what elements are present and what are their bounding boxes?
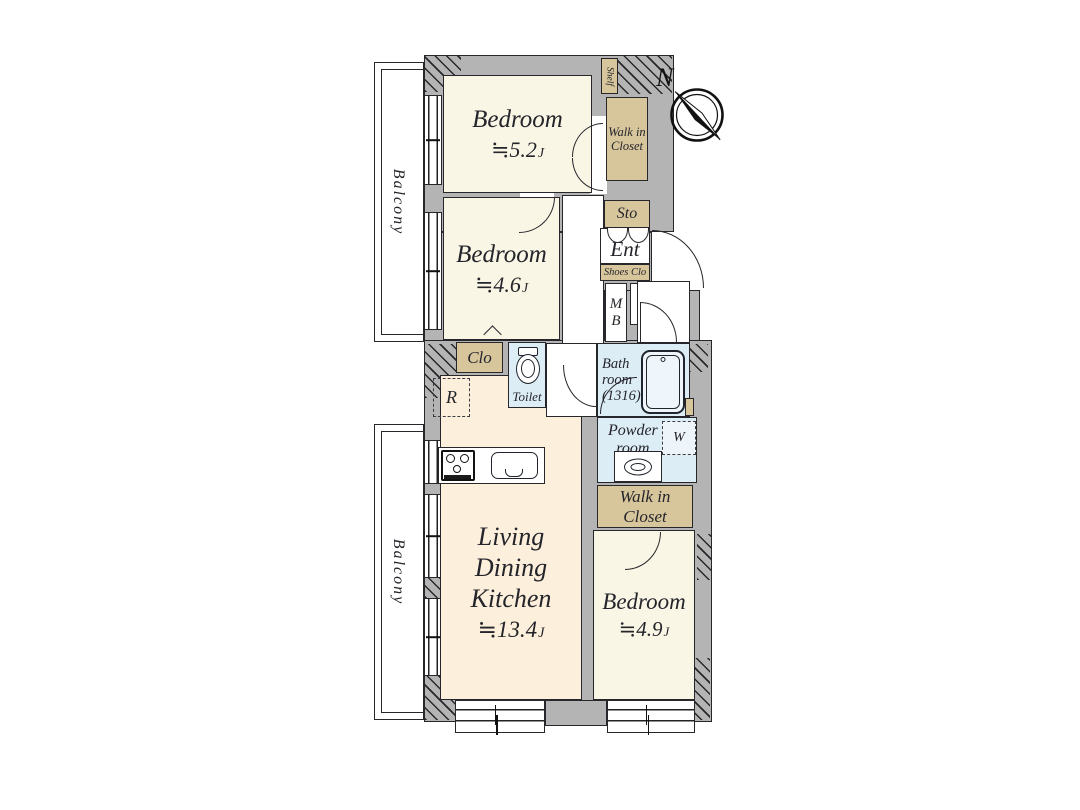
washer-label: W [673,430,685,446]
wall-hatch [697,534,711,580]
room-living-dining-kitchen: Living Dining Kitchen ≒13.4J [440,375,582,700]
walk-in-closet-top-label: Walk in Closet [608,125,645,153]
wall-pier [545,700,607,726]
stove-icon [441,450,475,481]
bedroom-top-label: Bedroom [472,105,563,135]
shoes-closet: Shoes Clo [600,264,650,281]
window [424,95,442,185]
washer-space: W [662,421,696,455]
toilet-icon [515,347,541,385]
refrigerator-label: R [446,387,457,408]
north-label: N [655,63,675,92]
bedroom-top-size: ≒5.2 [491,137,537,163]
toilet-label: Toilet [512,389,541,405]
toilet-room: Toilet [508,342,546,408]
shoes-closet-label: Shoes Clo [604,267,646,278]
refrigerator-space: R [433,378,470,417]
bay-window [455,700,545,733]
bay-window [607,700,695,733]
balcony-bottom-label: Balcony [389,539,407,605]
meter-box: M B [605,283,627,342]
walk-in-closet-top: Walk in Closet [606,97,648,181]
closet: Clo [456,342,503,373]
bedroom-mid-label: Bedroom [456,240,547,270]
closet-label: Clo [467,348,492,368]
bedroom-right-label: Bedroom [602,588,685,616]
shelf: Shelf [601,58,618,94]
bedroom-mid-size: ≒4.6 [475,272,521,298]
balcony-top-label: Balcony [389,169,407,235]
balcony-bottom: Balcony [374,424,424,720]
shelf-label: Shelf [605,67,615,86]
sink-basin [631,463,646,471]
vanity-counter [614,451,662,482]
ldk-size: ≒13.4 [478,617,538,643]
balcony-top: Balcony [374,62,424,342]
storage: Sto [604,200,650,228]
kitchen-counter [438,447,545,484]
kitchen-sink-icon [491,452,538,479]
ldk-size-unit: J [538,625,544,642]
meter-box-label: M B [610,296,623,330]
bath-counter-step [685,398,694,416]
room-bedroom-top: Bedroom ≒5.2J [443,75,592,193]
walk-in-closet-bottom-label: Walk in Closet [620,487,671,525]
storage-label: Sto [617,205,637,223]
door-arc-entrance [652,230,704,288]
floor-plan: Balcony Balcony Living Dining Kitchen ≒1… [0,0,1080,810]
bedroom-right-size: ≒4.9 [619,617,663,642]
compass-icon: N [650,60,745,160]
corridor [562,195,604,345]
ldk-label: Living Dining Kitchen [441,521,581,615]
walk-in-closet-bottom: Walk in Closet [597,485,693,528]
window [424,212,442,330]
bathtub-icon [641,350,685,414]
